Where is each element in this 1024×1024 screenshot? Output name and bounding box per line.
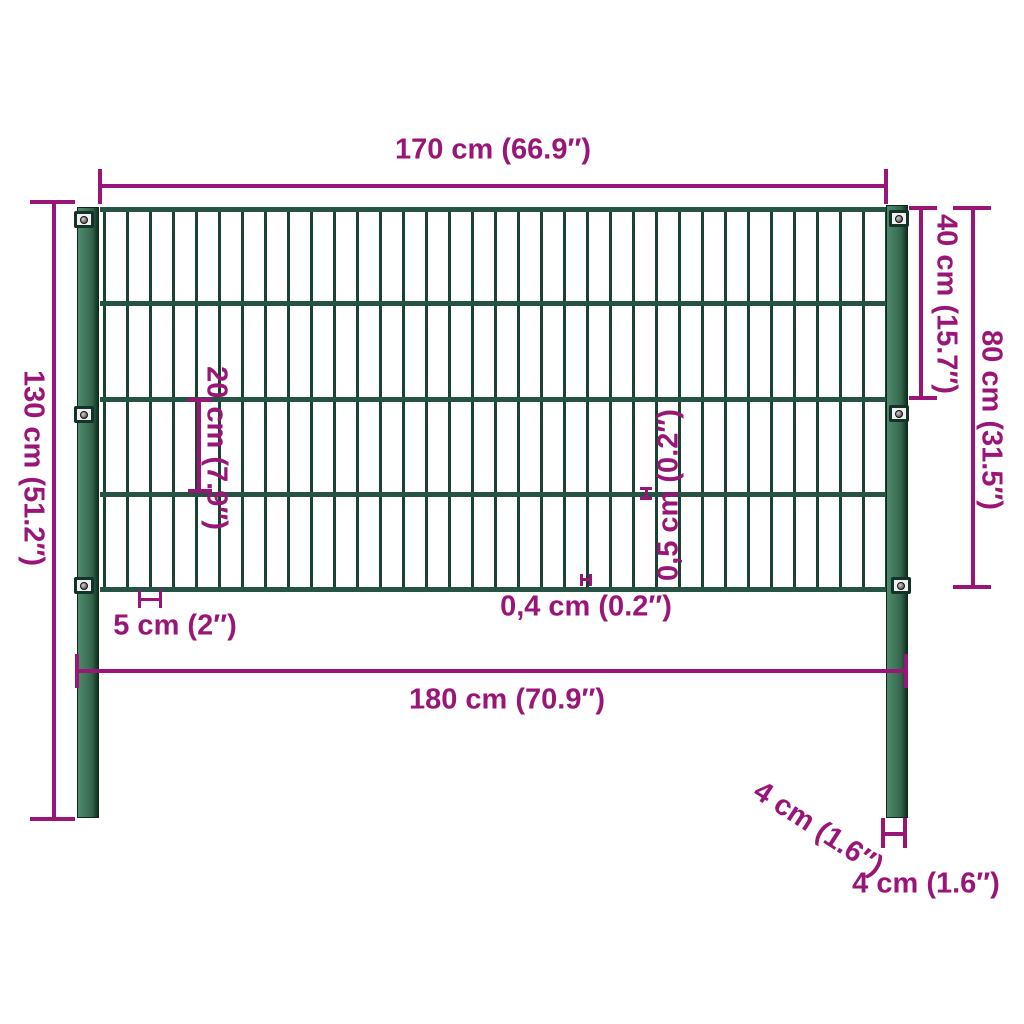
dim-line	[645, 489, 648, 499]
post-bracket	[74, 211, 94, 228]
dim-line	[100, 184, 888, 188]
dim-tick	[953, 585, 991, 589]
dim-label-panel-height: 80 cm (31.5″)	[977, 330, 1006, 510]
post-bracket	[891, 577, 911, 594]
post-bracket	[889, 405, 909, 422]
bracket-screw-icon	[80, 216, 88, 224]
post-bracket	[74, 577, 94, 594]
bracket-screw-icon	[895, 410, 903, 418]
dim-line	[582, 578, 590, 581]
mesh-rail-bottom	[100, 587, 888, 592]
dim-label-post-height: 130 cm (51.2″)	[19, 370, 48, 566]
bracket-screw-icon	[897, 582, 905, 590]
dim-line	[77, 669, 908, 673]
dim-tick	[909, 206, 937, 210]
dim-tick	[909, 396, 937, 400]
dim-tick	[30, 817, 75, 821]
dim-label-post-width: 4 cm (1.6″)	[852, 870, 1000, 899]
fence-post-right	[886, 205, 908, 818]
bracket-screw-icon	[895, 215, 903, 223]
dim-tick	[30, 200, 75, 204]
dim-label-rail-spacing: 20 cm (7.9″)	[202, 366, 231, 530]
dim-tick	[904, 654, 908, 688]
dim-line	[52, 201, 56, 820]
dim-tick	[881, 818, 885, 848]
dim-label-horizontal-wire-thickness: 0,5 cm (0.2″)	[655, 409, 684, 581]
dim-line	[919, 207, 923, 400]
dim-label-vertical-wire-thickness: 0,4 cm (0.2″)	[500, 593, 672, 622]
fence-post-left	[77, 207, 99, 818]
dim-tick	[138, 590, 141, 608]
post-bracket	[74, 406, 94, 423]
mesh-rail-top	[100, 207, 888, 212]
post-bracket	[889, 210, 909, 227]
dim-label-panel-width: 170 cm (66.9″)	[395, 136, 591, 165]
dim-tick	[75, 654, 79, 688]
dim-label-wire-spacing: 5 cm (2″)	[113, 612, 237, 641]
dim-line	[971, 207, 975, 589]
dim-tick	[903, 818, 907, 848]
dim-tick	[884, 169, 888, 204]
dim-tick	[953, 206, 991, 210]
dim-label-post-depth: 4 cm (1.6″)	[748, 777, 888, 882]
dim-tick	[159, 590, 162, 608]
mesh-rail-2	[100, 301, 888, 306]
dim-tick	[98, 169, 102, 204]
dim-label-post-spacing: 180 cm (70.9″)	[409, 686, 605, 715]
bracket-screw-icon	[80, 582, 88, 590]
dim-label-section-height: 40 cm (15.7″)	[932, 214, 961, 394]
fence-dimension-diagram: 170 cm (66.9″) 130 cm (51.2″) 40 cm (15.…	[0, 0, 1024, 1024]
bracket-screw-icon	[80, 411, 88, 419]
